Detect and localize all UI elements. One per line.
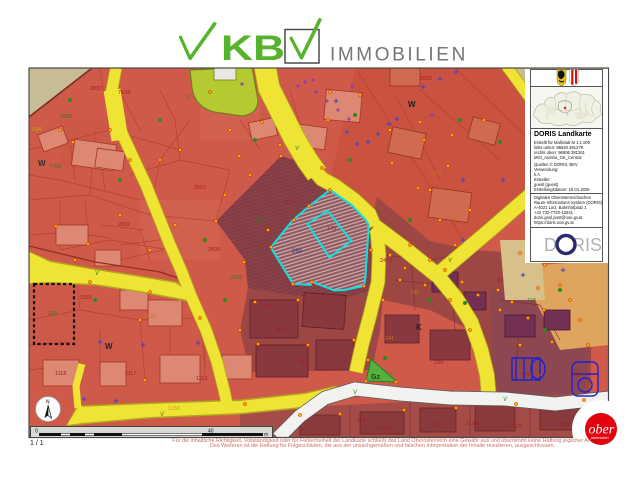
svg-text:47: 47 bbox=[497, 278, 503, 284]
svg-text:779: 779 bbox=[521, 372, 530, 378]
svg-text:1159: 1159 bbox=[168, 406, 180, 412]
svg-text:119/6: 119/6 bbox=[466, 421, 479, 427]
svg-text:189: 189 bbox=[560, 422, 569, 428]
svg-text:2634: 2634 bbox=[144, 314, 156, 320]
svg-text:N: N bbox=[46, 400, 50, 406]
svg-text:744: 744 bbox=[450, 217, 459, 223]
svg-text:175: 175 bbox=[327, 226, 336, 232]
svg-text:2507: 2507 bbox=[194, 185, 206, 191]
svg-text:2510: 2510 bbox=[420, 76, 432, 82]
svg-text:0: 0 bbox=[35, 428, 38, 434]
svg-text:264: 264 bbox=[298, 360, 307, 366]
svg-text:176/4: 176/4 bbox=[378, 426, 392, 432]
svg-text:239: 239 bbox=[434, 360, 443, 366]
svg-text:2602: 2602 bbox=[118, 222, 130, 228]
svg-text:2537: 2537 bbox=[430, 171, 442, 177]
svg-text:D: D bbox=[544, 235, 557, 255]
svg-text:263: 263 bbox=[262, 304, 271, 310]
svg-text:W: W bbox=[105, 342, 113, 351]
svg-text:2835: 2835 bbox=[60, 114, 72, 120]
svg-text:269: 269 bbox=[292, 249, 303, 255]
svg-text:7765: 7765 bbox=[49, 164, 61, 170]
svg-text:779: 779 bbox=[356, 418, 365, 424]
svg-text:W: W bbox=[408, 100, 416, 109]
svg-text:119: 119 bbox=[48, 311, 57, 317]
svg-text:119: 119 bbox=[527, 298, 536, 304]
svg-text:2506: 2506 bbox=[208, 247, 220, 253]
svg-text:241: 241 bbox=[385, 336, 394, 342]
svg-text:2177: 2177 bbox=[283, 200, 295, 206]
svg-text:267: 267 bbox=[276, 328, 285, 334]
svg-text:1118: 1118 bbox=[55, 371, 66, 377]
svg-text:2567: 2567 bbox=[255, 218, 267, 224]
svg-text:m: m bbox=[264, 432, 268, 438]
svg-text:278: 278 bbox=[572, 372, 581, 378]
svg-text:178: 178 bbox=[432, 422, 441, 428]
svg-text:K: K bbox=[416, 323, 422, 332]
svg-text:2502: 2502 bbox=[230, 275, 242, 281]
svg-text:7/84: 7/84 bbox=[31, 127, 42, 133]
svg-text:✓: ✓ bbox=[389, 371, 394, 377]
svg-text:1119: 1119 bbox=[196, 376, 207, 382]
svg-text:190: 190 bbox=[410, 290, 419, 296]
svg-text:2837: 2837 bbox=[90, 86, 102, 92]
svg-text:175/5: 175/5 bbox=[508, 424, 522, 430]
svg-text:7634: 7634 bbox=[118, 90, 130, 96]
svg-text:2472: 2472 bbox=[380, 258, 392, 264]
svg-text:1159: 1159 bbox=[80, 295, 92, 301]
svg-text:W: W bbox=[38, 159, 46, 168]
svg-text:1117: 1117 bbox=[125, 371, 136, 377]
svg-text:Gz: Gz bbox=[371, 374, 380, 381]
